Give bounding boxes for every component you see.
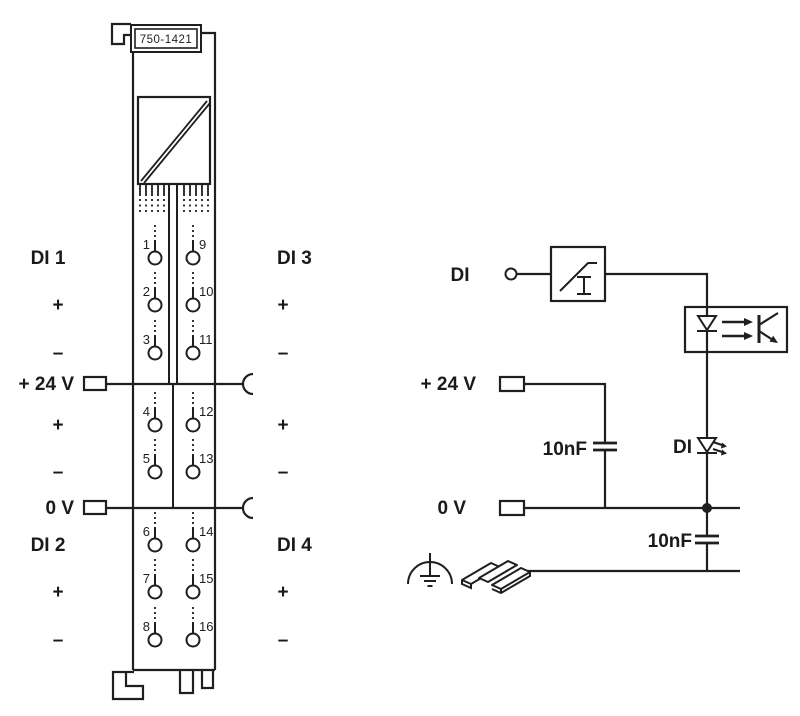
module-outline — [112, 24, 215, 699]
contact-number: 9 — [199, 237, 206, 252]
label-plus: + — [277, 582, 288, 603]
contact-number: 1 — [143, 237, 150, 252]
contact-circle-13 — [187, 466, 200, 479]
electronics-diagonal-icon — [141, 101, 210, 183]
emission-arrow-head — [721, 443, 727, 449]
terminal-0v-icon — [500, 501, 524, 515]
power-rail-0v — [84, 498, 253, 518]
capacitor-bottom: 10nF — [648, 531, 719, 552]
label-0v: 0 V — [45, 498, 74, 519]
contact-number: 3 — [143, 332, 150, 347]
contact-circle-6 — [149, 539, 162, 552]
label-minus: – — [53, 462, 64, 483]
di-input-label: DI — [451, 265, 470, 286]
contact-number: 2 — [143, 284, 150, 299]
contact-circle-16 — [187, 634, 200, 647]
phototransistor-icon — [759, 313, 778, 343]
capacitor-value: 10nF — [543, 439, 587, 460]
contact-circle-5 — [149, 466, 162, 479]
transistor-legs — [759, 313, 778, 342]
contact-circle-11 — [187, 347, 200, 360]
junction-dot — [702, 503, 712, 513]
arrow-head — [744, 318, 753, 326]
power-jumper-arc-24v — [243, 374, 253, 394]
contact-circle-12 — [187, 419, 200, 432]
label-minus: – — [53, 630, 64, 651]
contact-circle-2 — [149, 299, 162, 312]
light-arrows-icon — [722, 318, 753, 340]
contact-circle-14 — [187, 539, 200, 552]
contact-number: 15 — [199, 571, 213, 586]
contact-circle-8 — [149, 634, 162, 647]
connector-comb — [140, 184, 208, 196]
status-led-label: DI — [673, 437, 692, 458]
module-connection-diagram: 750-1421 — [19, 24, 313, 699]
terminal-24v-icon — [84, 377, 106, 390]
center-divider — [169, 184, 177, 508]
label-di1: DI 1 — [31, 248, 66, 269]
capacitor-plates-icon — [695, 536, 719, 543]
label-minus: – — [278, 343, 289, 364]
power-jumper-arc-0v — [243, 498, 253, 518]
contact-number: 8 — [143, 619, 150, 634]
input-terminal-icon — [506, 269, 517, 280]
contact-circle-9 — [187, 252, 200, 265]
terminal-24v-icon — [500, 377, 524, 391]
optocoupler-led-icon — [697, 316, 717, 331]
ground-bars — [420, 553, 440, 586]
earth-ground-icon — [408, 553, 452, 586]
contact-circle-7 — [149, 586, 162, 599]
contact-circle-3 — [149, 347, 162, 360]
label-minus: – — [278, 462, 289, 483]
label-24v: + 24 V — [19, 374, 75, 395]
contact-circle-15 — [187, 586, 200, 599]
contact-number: 4 — [143, 404, 150, 419]
contact-number: 12 — [199, 404, 213, 419]
contact-number: 16 — [199, 619, 213, 634]
contact-circle-4 — [149, 419, 162, 432]
contact-circle-1 — [149, 252, 162, 265]
arrow-shafts — [722, 322, 744, 336]
label-di4: DI 4 — [277, 535, 312, 556]
contact-number: 11 — [199, 332, 213, 347]
contact-circle-10 — [187, 299, 200, 312]
wiring-diagram-canvas: 750-1421 — [0, 0, 800, 716]
capacitor-value: 10nF — [648, 531, 692, 552]
connector-dots — [140, 199, 208, 212]
capacitor-plates-icon — [593, 443, 617, 450]
led-triangle — [698, 316, 716, 330]
circuit-schematic: DI DI + 24 — [408, 247, 787, 593]
status-led: DI — [673, 437, 727, 458]
contact-number: 7 — [143, 571, 150, 586]
input-filter-icon — [560, 263, 597, 294]
arrow-head — [744, 332, 753, 340]
emission-arrow-shafts — [713, 442, 722, 452]
label-minus: – — [53, 343, 64, 364]
label-plus: + — [52, 415, 63, 436]
label-di3: DI 3 — [277, 248, 312, 269]
zero-volt-label: 0 V — [437, 498, 466, 519]
part-number: 750-1421 — [140, 34, 193, 46]
contact-number: 6 — [143, 524, 150, 539]
label-plus: + — [277, 295, 288, 316]
contact-numbers: 1 2 3 4 5 6 7 8 9 10 11 12 13 14 15 16 — [143, 237, 214, 634]
optocoupler-box — [685, 307, 787, 352]
label-minus: – — [278, 630, 289, 651]
contact-number: 14 — [199, 524, 213, 539]
label-plus: + — [52, 295, 63, 316]
label-di2: DI 2 — [31, 535, 66, 556]
terminal-0v-icon — [84, 501, 106, 514]
contact-number: 13 — [199, 451, 213, 466]
din-rail-icon — [462, 561, 530, 593]
label-plus: + — [277, 415, 288, 436]
label-plus: + — [52, 582, 63, 603]
emission-arrow-head — [721, 450, 727, 456]
wiring-diagram-page: 750-1421 — [0, 0, 800, 716]
contact-number: 5 — [143, 451, 150, 466]
supply-label: + 24 V — [421, 374, 477, 395]
contact-number: 10 — [199, 284, 213, 299]
